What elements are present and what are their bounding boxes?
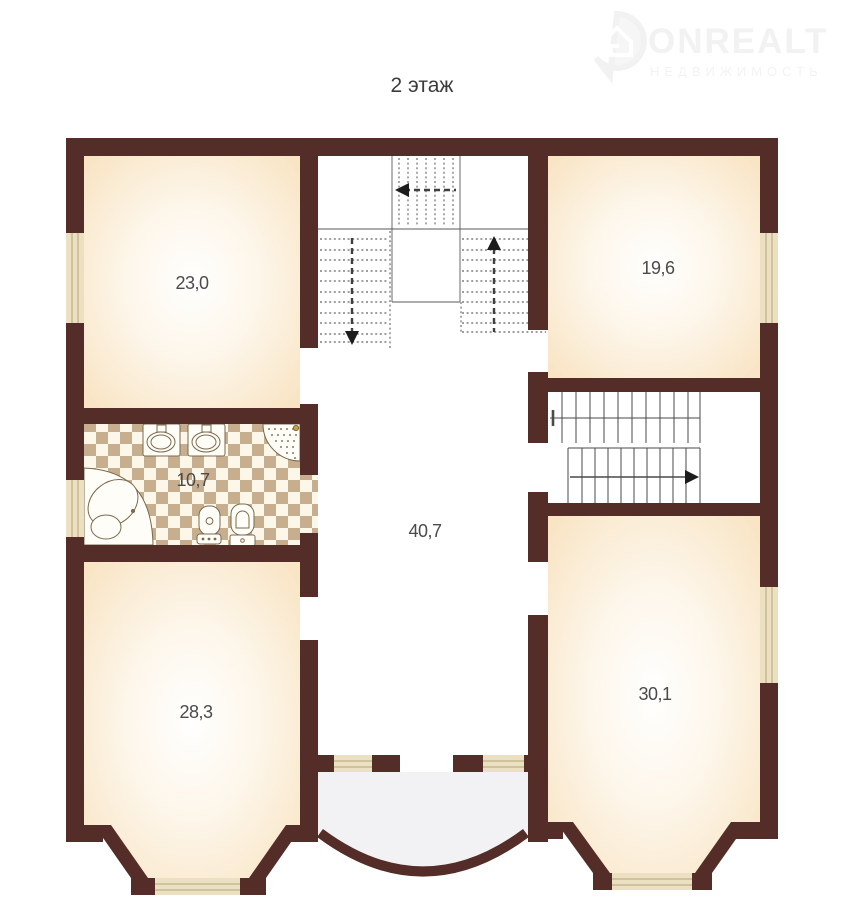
wall-bay-right-lip [528,822,563,839]
wall-bay-left-lip [286,825,318,842]
wall-right [760,323,778,587]
toilet-bowl-inner [236,511,249,528]
arrow-down-icon [345,331,359,345]
window-balcony-left [334,755,372,772]
shower-head-icon [293,425,298,430]
room-area-label: 30,1 [638,684,672,704]
sink-tap [202,425,211,432]
window-balcony-right [483,755,524,772]
wall-hall-left [300,533,318,597]
sink-basin-inner [196,435,216,449]
wall-balcony [524,755,548,772]
stair-treads-lower-run [568,448,700,503]
floor-plan-page: 23,0 19,6 10,7 40,7 28,3 30,1 2 этаж ONR… [0,0,843,910]
wall-hall-right [528,492,548,562]
right-staircase [550,392,700,503]
wall-bathroom-bottom [66,545,318,562]
room-area-label: 28,3 [179,702,213,722]
window-top-right-room [760,233,778,323]
wall-hall-left [300,640,318,842]
logo-tagline-text: НЕДВИЖИМОСТЬ [650,64,823,79]
wall-balcony [372,755,400,772]
room-area-label: 19,6 [641,258,675,278]
wall-bay-right-bottom [593,873,612,890]
location-pin-with-house-icon [596,14,644,76]
room-area-label: 23,0 [175,273,209,293]
window-bay-right [612,873,692,890]
window-bottom-right-room [760,587,778,683]
wall-bay-right-bottom [692,873,712,890]
sink-basin-inner [151,435,171,449]
room-area-label: 10,7 [176,470,210,490]
wall-bay-left-bottom [131,878,155,895]
logo-brand-text: ONREALT [648,22,829,61]
wall-right [760,156,778,233]
bathtub-drain [131,509,134,512]
arrow-left-icon [395,183,409,197]
bathroom-door-opening [300,475,318,533]
logo: ONREALT НЕДВИЖИМОСТЬ [596,14,829,79]
bidet-detail [206,518,213,525]
wall-hall-left [300,156,318,348]
wall-hall-right [528,615,548,757]
wall-balcony [318,755,334,772]
upper-staircase [318,156,548,350]
bathtub-basin-lower [91,515,121,539]
arrow-right-icon [685,470,699,484]
wall-left [66,156,84,233]
wall-hall-right [528,156,548,330]
arrow-up-icon [487,236,501,250]
window-bathroom [66,480,84,537]
wall-top [66,138,778,156]
toilet-base-detail [241,539,245,543]
wall-bay-right-lip [731,822,778,839]
bidet-base-dots [202,538,217,541]
wall-balcony [453,755,483,772]
wall-stair-top [538,378,778,392]
wall-left [66,537,84,825]
wall-right [760,683,778,822]
floor-plan-canvas: 23,0 19,6 10,7 40,7 28,3 30,1 2 этаж ONR… [0,0,843,910]
window-top-left-room [66,233,84,323]
wall-bathroom-top [66,408,318,424]
wall-left [66,323,84,480]
sink-tap [157,425,166,432]
room-area-label: 40,7 [408,521,442,541]
window-bay-left [155,878,240,895]
wall-stair-bottom [528,503,778,516]
wall-bay-left-bottom [240,878,266,895]
page-title: 2 этаж [391,74,454,97]
